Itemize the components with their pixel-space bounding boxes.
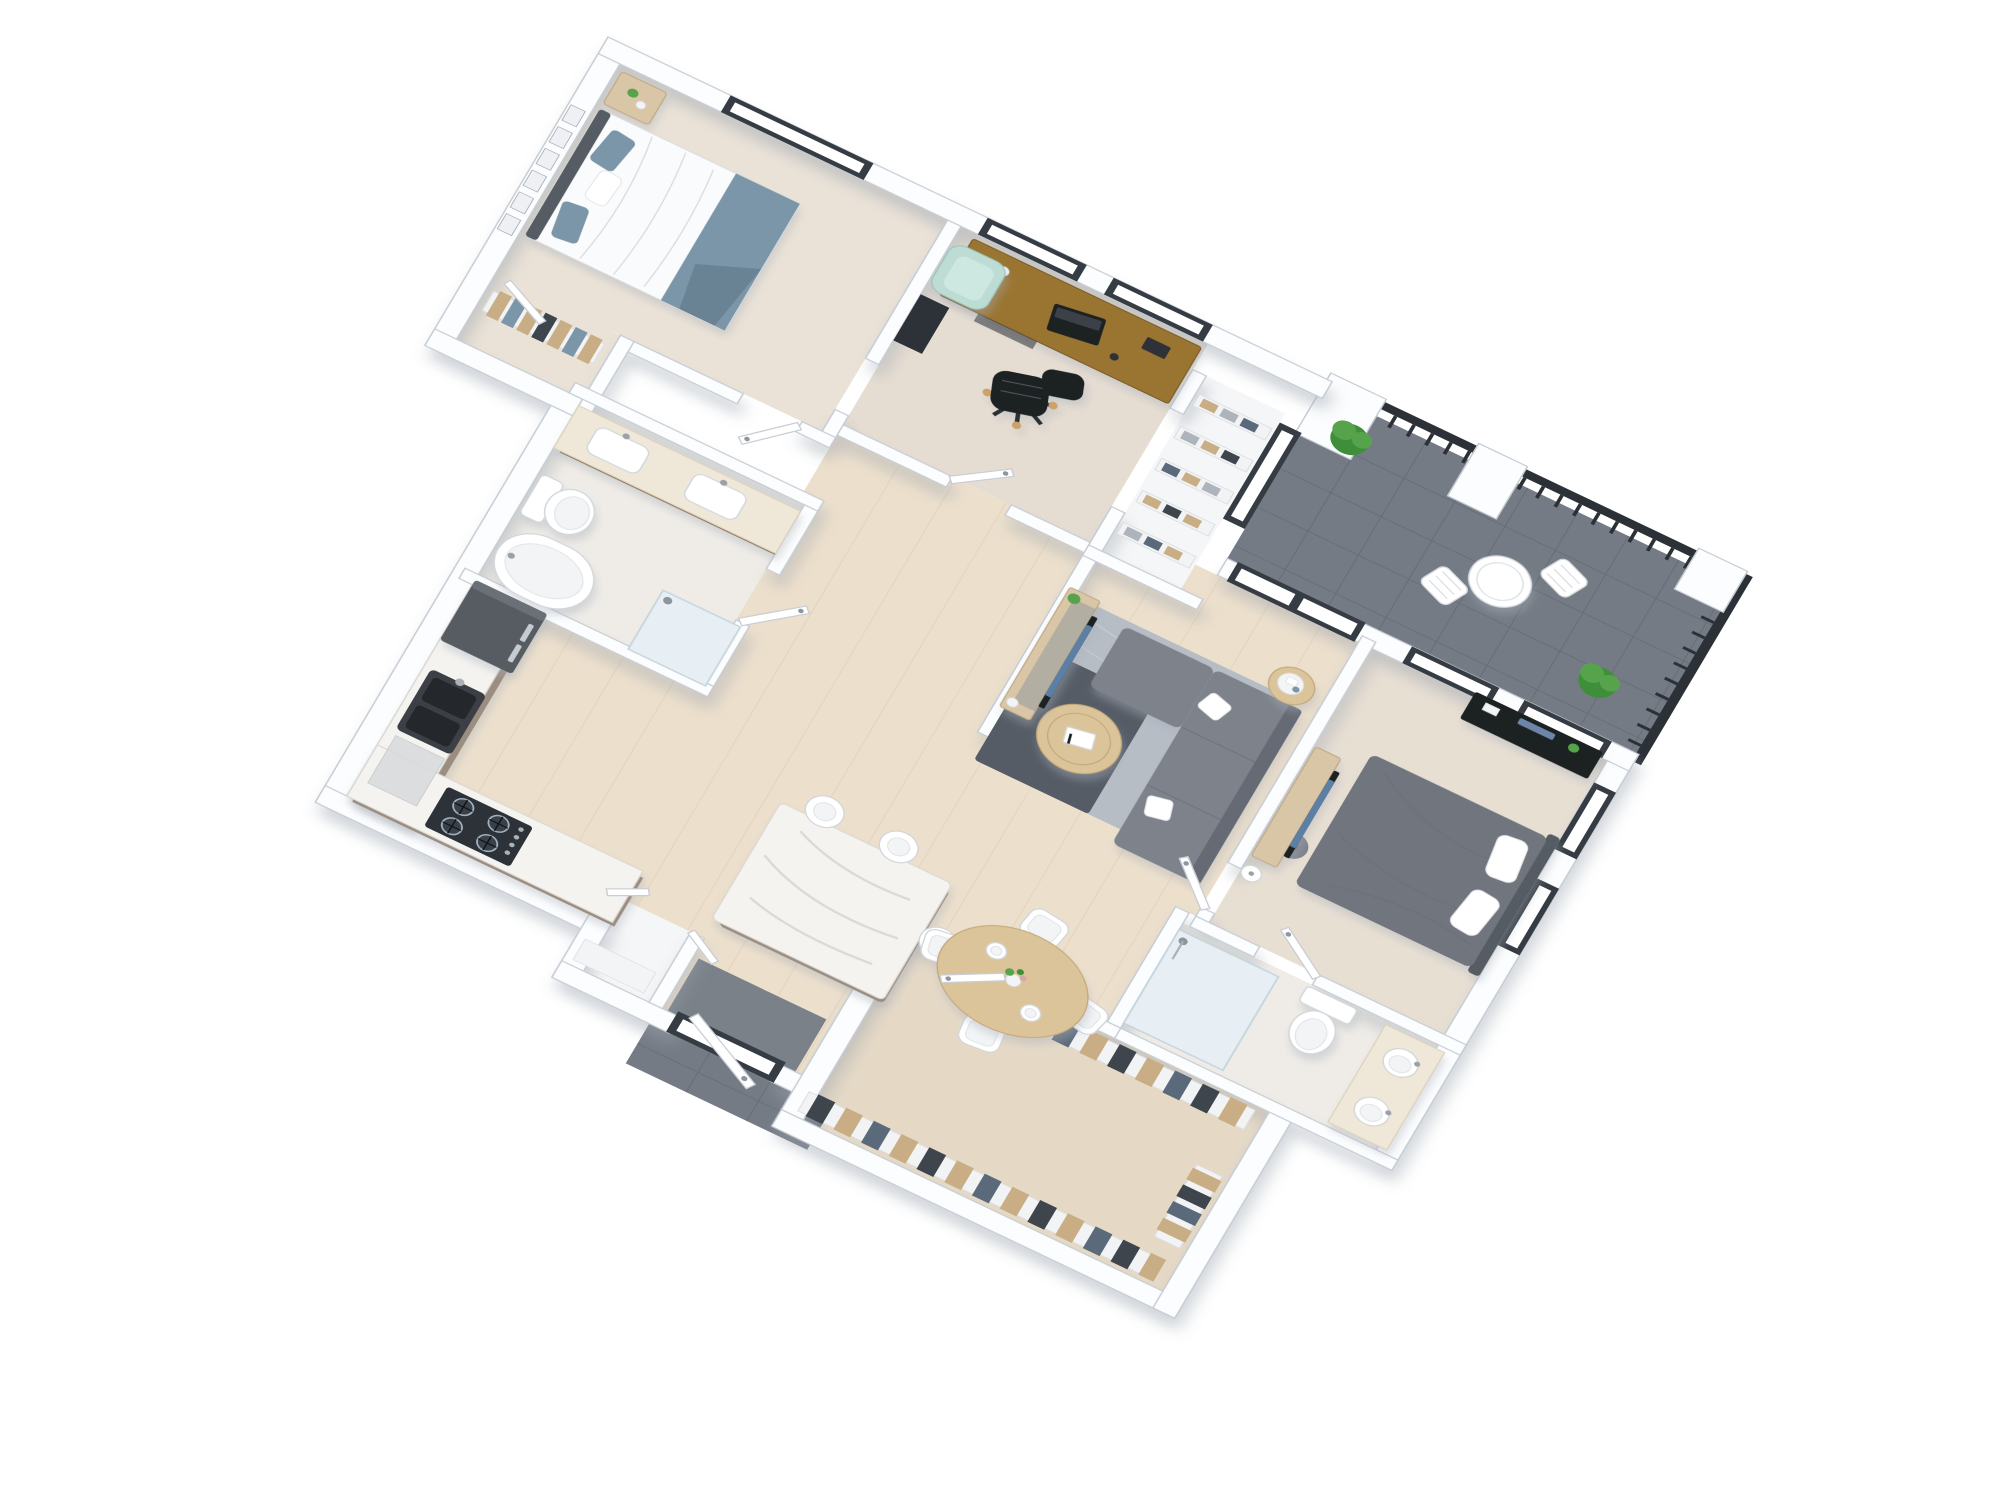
plan-root [137,31,1754,1375]
floorplan-render [0,0,2000,1500]
door-walkin-closet [940,973,1005,982]
floorplan-stage [0,0,2000,1500]
door-bedroom2 [738,422,801,444]
